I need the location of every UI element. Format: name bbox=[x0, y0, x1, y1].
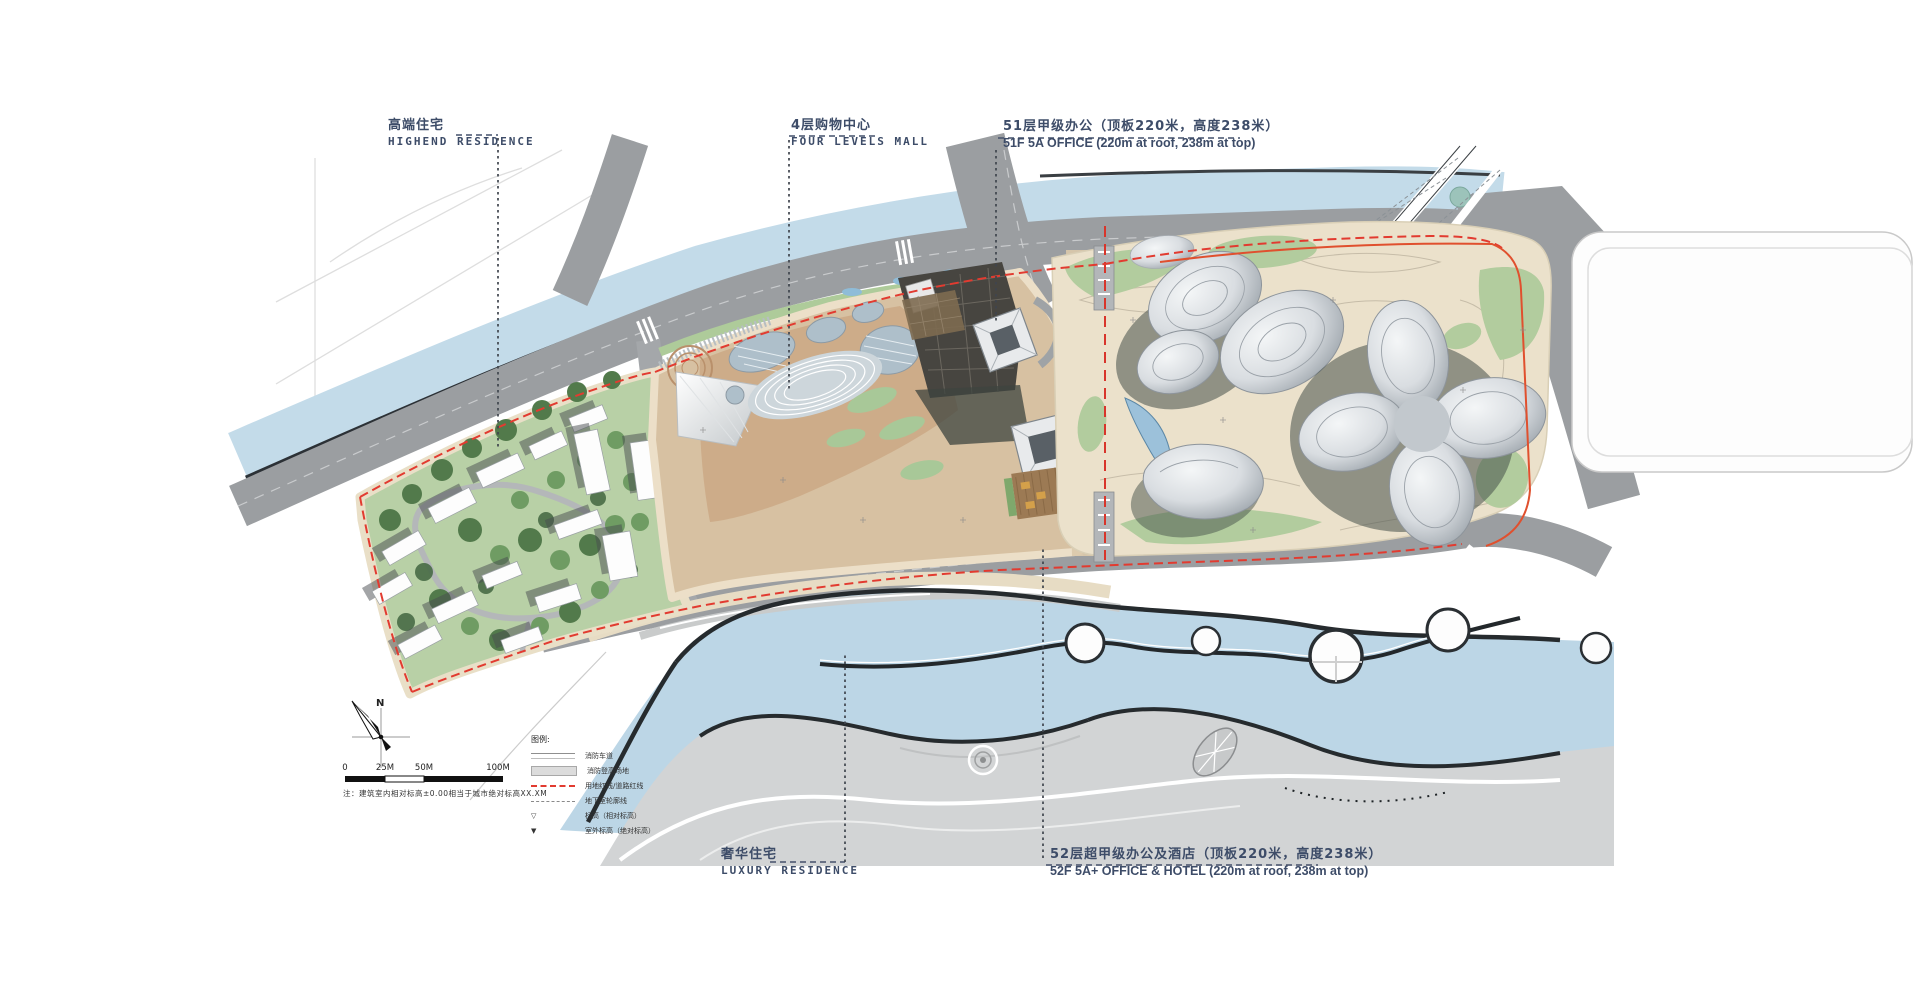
label-mall-zh: 4层购物中心 bbox=[791, 118, 929, 134]
basement-line-symbol bbox=[531, 801, 575, 802]
legend-label: 用地红线/道路红线 bbox=[585, 781, 643, 791]
label-highend-residence: 高端住宅 HIGHEND RESIDENCE bbox=[388, 118, 535, 150]
elevation-note: 注：建筑室内相对标高±0.00相当于城市绝对标高XX.XM bbox=[343, 788, 547, 799]
legend-label: 地下室轮廓线 bbox=[585, 796, 627, 806]
east-park bbox=[1052, 222, 1551, 562]
scale-tick: 0 bbox=[342, 763, 347, 773]
north-letter: N bbox=[376, 698, 384, 709]
level-marker-icon: ▽ bbox=[531, 812, 575, 820]
label-luxury-residence: 奢华住宅 LUXURY RESIDENCE bbox=[721, 847, 859, 879]
label-52f-zh: 52层超甲级办公及酒店（顶板220米，高度238米） bbox=[1050, 847, 1382, 863]
label-highend-zh: 高端住宅 bbox=[388, 118, 535, 134]
label-51f-en: 51F 5A OFFICE (220m at roof, 238m at top… bbox=[1003, 135, 1279, 151]
legend-row-red-line: 用地红线/道路红线 bbox=[531, 782, 681, 790]
legend-label: 室外标高（绝对标高） bbox=[585, 826, 655, 836]
label-51f-office: 51层甲级办公（顶板220米，高度238米） 51F 5A OFFICE (22… bbox=[1003, 119, 1279, 151]
legend-row-level-rel: ▽ 标高（相对标高） bbox=[531, 812, 681, 820]
level-marker-abs-icon: ▼ bbox=[531, 827, 575, 835]
legend-row-fire-area: 消防登高场地 bbox=[531, 767, 681, 775]
label-51f-zh: 51层甲级办公（顶板220米，高度238米） bbox=[1003, 119, 1279, 135]
label-highend-en: HIGHEND RESIDENCE bbox=[388, 134, 535, 150]
site-plan-page: N 0 25M 50M 100M 高端住宅 HIGHEND RESIDENCE … bbox=[0, 0, 1920, 1000]
legend-label: 消防车道 bbox=[585, 751, 613, 761]
legend-row-basement-line: 地下室轮廓线 bbox=[531, 797, 681, 805]
legend-label: 消防登高场地 bbox=[587, 766, 629, 776]
label-52f-office-hotel: 52层超甲级办公及酒店（顶板220米，高度238米） 52F 5A+ OFFIC… bbox=[1050, 847, 1382, 879]
site-plan-drawing: N 0 25M 50M 100M bbox=[0, 0, 1920, 1000]
legend-title: 图例: bbox=[531, 734, 681, 745]
fire-area-symbol bbox=[531, 766, 577, 776]
scale-tick: 25M bbox=[376, 763, 394, 773]
legend-row-fire-lane: 消防车道 bbox=[531, 752, 681, 760]
scale-tick: 100M bbox=[486, 763, 510, 773]
scale-bar: 0 25M 50M 100M bbox=[342, 763, 509, 782]
legend: 图例: 消防车道 消防登高场地 用地红线/道路红线 地下室轮廓线 ▽ 标高（相对… bbox=[531, 734, 681, 842]
fire-lane-symbol bbox=[531, 753, 575, 759]
north-compass: N bbox=[352, 698, 410, 768]
label-luxury-en: LUXURY RESIDENCE bbox=[721, 863, 859, 879]
east-city-blocks bbox=[1572, 232, 1912, 472]
label-four-levels-mall: 4层购物中心 FOUR LEVELS MALL bbox=[791, 118, 929, 150]
label-mall-en: FOUR LEVELS MALL bbox=[791, 134, 929, 150]
label-luxury-zh: 奢华住宅 bbox=[721, 847, 859, 863]
scale-tick: 50M bbox=[415, 763, 433, 773]
legend-label: 标高（相对标高） bbox=[585, 811, 641, 821]
red-line-symbol bbox=[531, 785, 575, 787]
label-52f-en: 52F 5A+ OFFICE & HOTEL (220m at roof, 23… bbox=[1050, 863, 1382, 879]
legend-row-level-abs: ▼ 室外标高（绝对标高） bbox=[531, 827, 681, 835]
